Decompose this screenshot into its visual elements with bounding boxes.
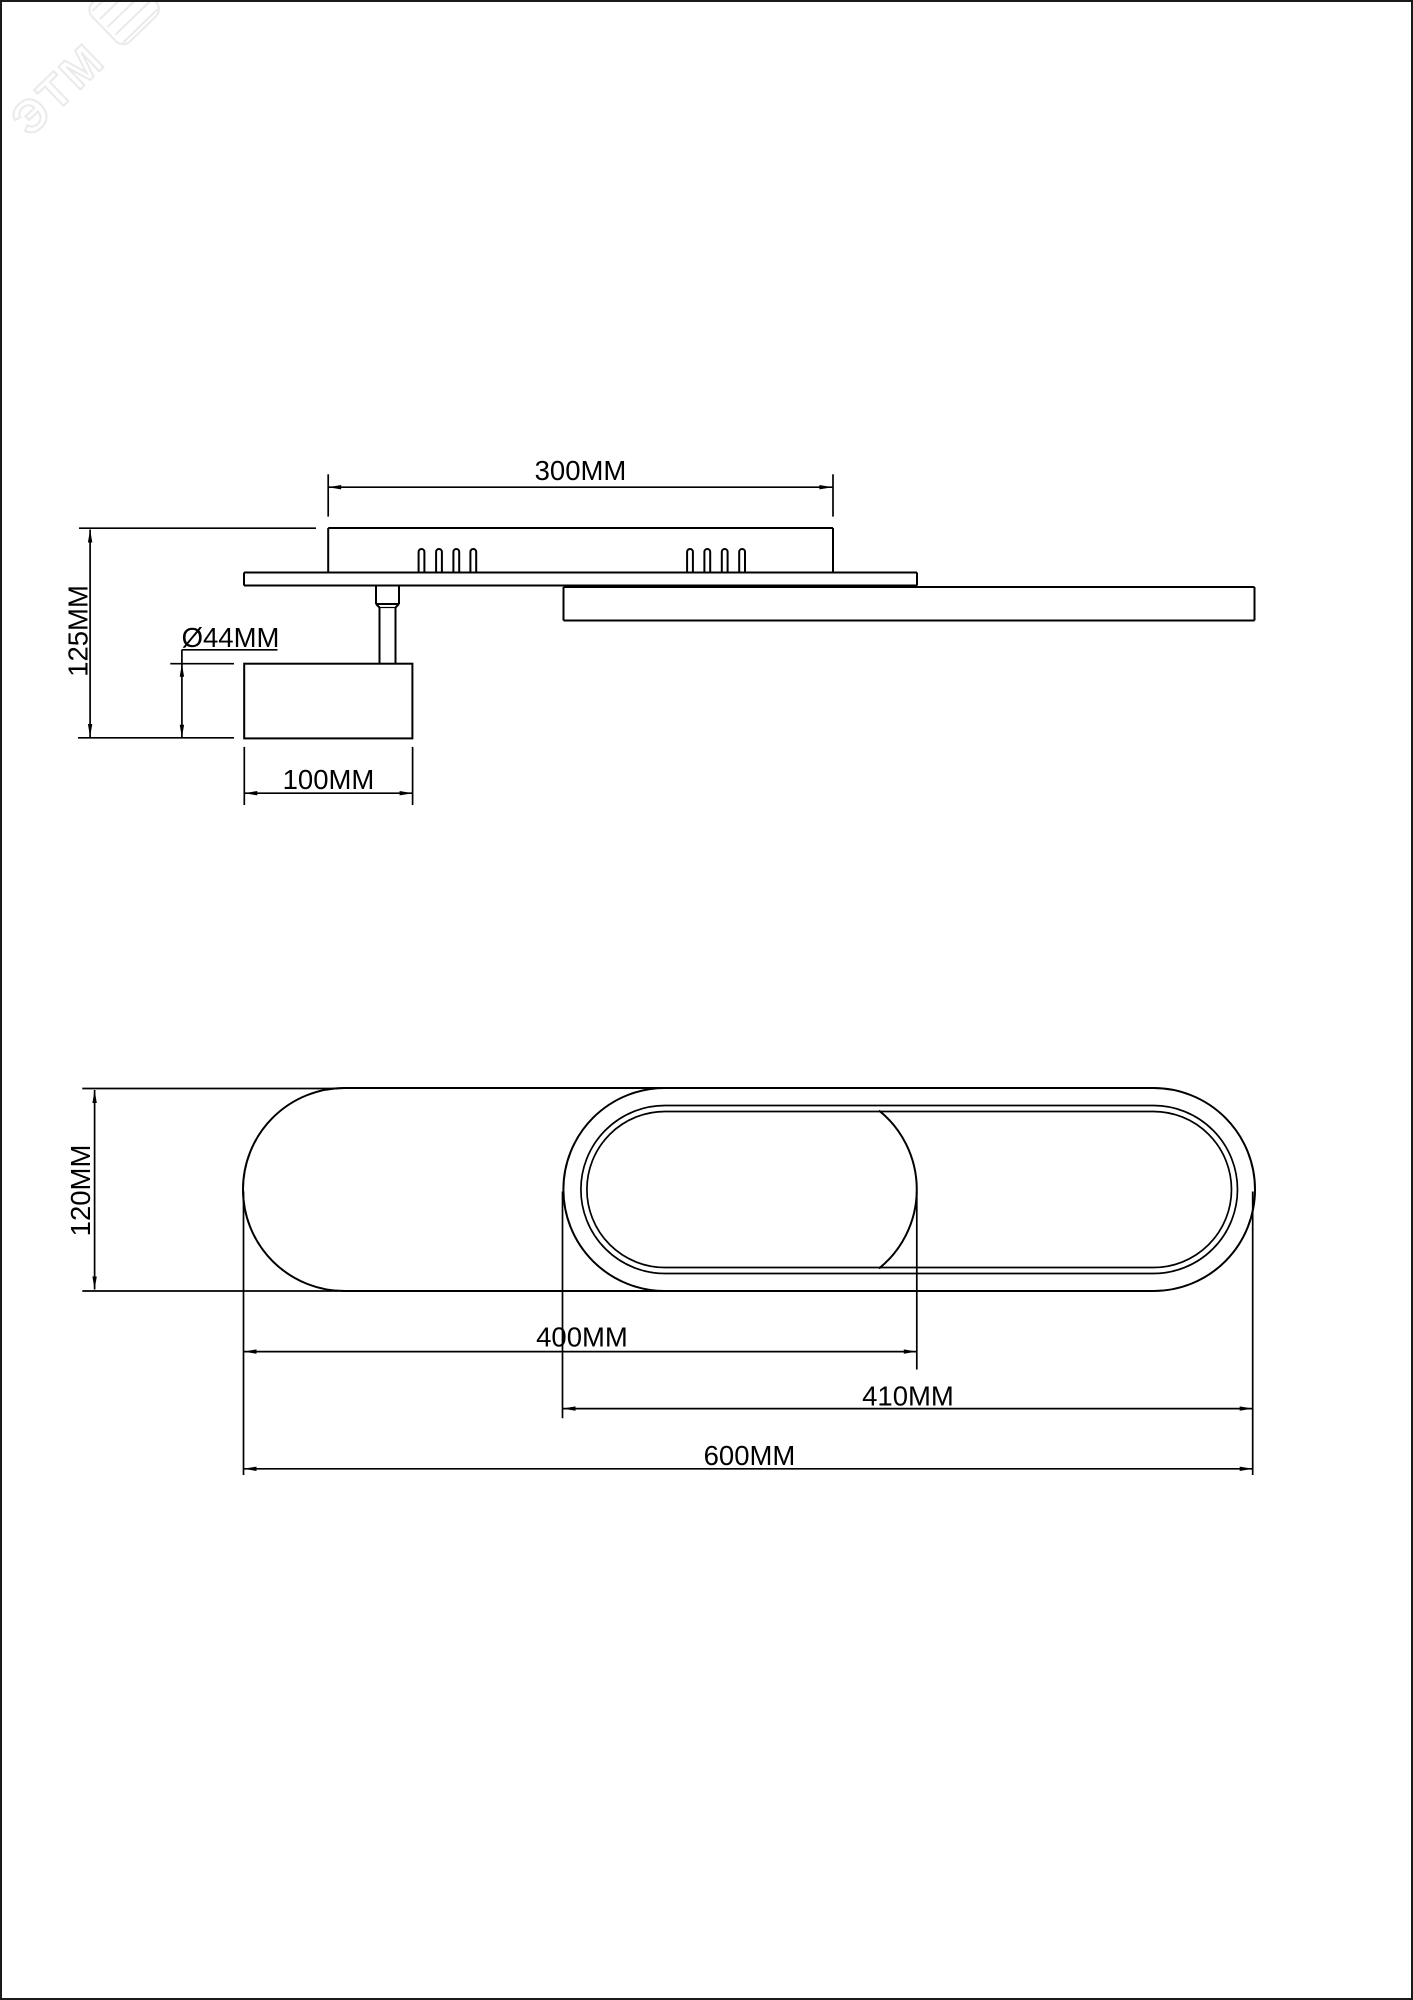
- svg-text:100MM: 100MM: [283, 764, 375, 795]
- svg-text:Ø44MM: Ø44MM: [182, 622, 280, 653]
- svg-text:600MM: 600MM: [704, 1440, 796, 1471]
- svg-text:ЭТМ: ЭТМ: [1, 33, 115, 146]
- svg-text:410MM: 410MM: [862, 1381, 954, 1412]
- svg-text:400MM: 400MM: [536, 1322, 628, 1353]
- svg-text:300MM: 300MM: [535, 455, 627, 486]
- svg-text:125MM: 125MM: [63, 585, 94, 677]
- svg-text:120MM: 120MM: [65, 1145, 96, 1237]
